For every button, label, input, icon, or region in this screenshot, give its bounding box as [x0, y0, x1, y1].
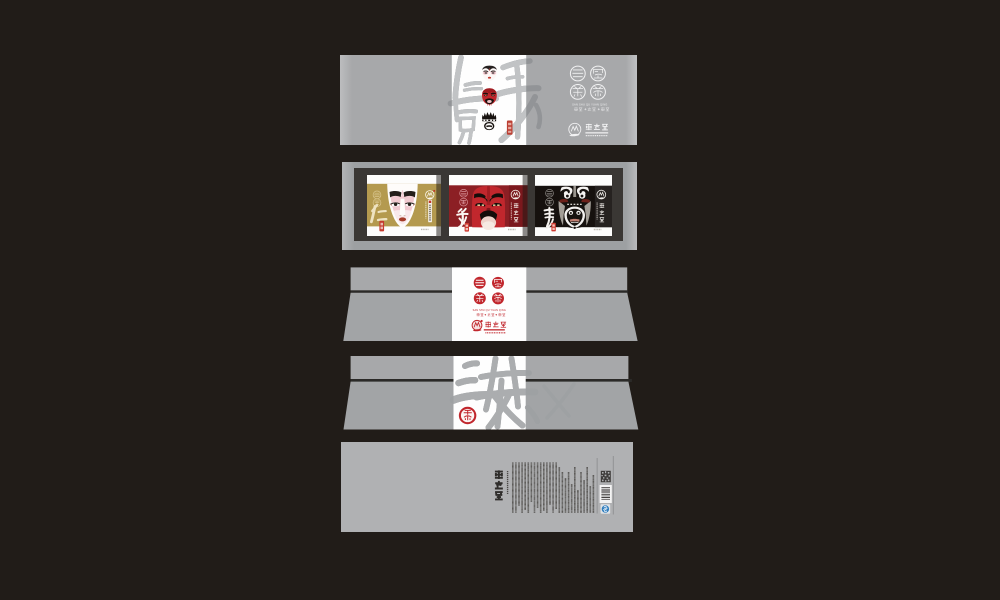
svg-text:SAN SHU QU YUAN QING: SAN SHU QU YUAN QING	[572, 102, 607, 106]
svg-text:SAN SHU QU YUAN QING: SAN SHU QU YUAN QING	[473, 309, 506, 312]
